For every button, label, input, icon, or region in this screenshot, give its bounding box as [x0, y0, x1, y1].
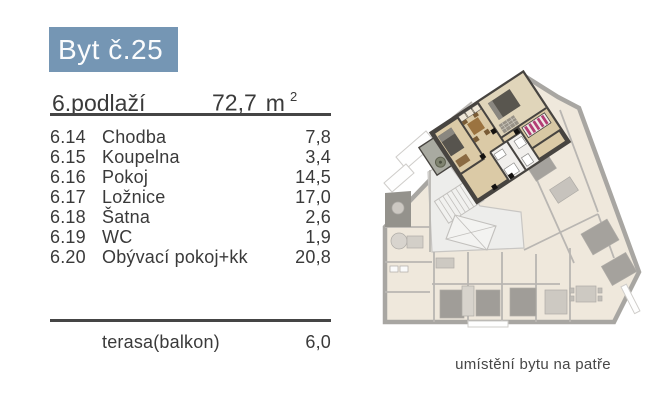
table-row: 6.16 Pokoj 14,5 [50, 167, 331, 187]
room-code: 6.19 [50, 227, 102, 247]
room-name: Obývací pokoj+kk [102, 247, 267, 267]
table-row: 6.18 Šatna 2,6 [50, 207, 331, 227]
table-row: 6.15 Koupelna 3,4 [50, 147, 331, 167]
apartment-title: Byt č.25 [49, 27, 178, 72]
bottom-divider [50, 319, 331, 322]
room-name: WC [102, 227, 267, 247]
plan-caption: umístění bytu na patře [448, 356, 618, 373]
room-area: 7,8 [267, 127, 331, 147]
room-name: Ložnice [102, 187, 267, 207]
floor-area-summary: 6.podlaží72,7m2 [52, 86, 333, 112]
room-code: 6.14 [50, 127, 102, 147]
room-code: 6.16 [50, 167, 102, 187]
room-area: 17,0 [267, 187, 331, 207]
top-divider [50, 113, 331, 116]
table-row: 6.17 Ložnice 17,0 [50, 187, 331, 207]
terrace-name: terasa(balkon) [102, 332, 267, 352]
table-row: 6.14 Chodba 7,8 [50, 127, 331, 147]
room-code: 6.17 [50, 187, 102, 207]
table-row: 6.19 WC 1,9 [50, 227, 331, 247]
room-name: Šatna [102, 207, 267, 227]
floorplan-graphic [378, 56, 652, 348]
room-code: 6.18 [50, 207, 102, 227]
room-code: 6.15 [50, 147, 102, 167]
terrace-area: 6,0 [267, 332, 331, 352]
room-code: 6.20 [50, 247, 102, 267]
room-area: 20,8 [267, 247, 331, 267]
room-name: Chodba [102, 127, 267, 147]
room-area: 2,6 [267, 207, 331, 227]
room-name: Pokoj [102, 167, 267, 187]
apartment-datasheet: Byt č.25 6.podlaží72,7m2 6.14 Chodba 7,8… [0, 0, 656, 400]
terrace-row: terasa(balkon) 6,0 [50, 332, 331, 352]
table-row: 6.20 Obývací pokoj+kk 20,8 [50, 247, 331, 267]
area-unit: m [266, 90, 285, 116]
room-area: 1,9 [267, 227, 331, 247]
room-area: 14,5 [267, 167, 331, 187]
room-area: 3,4 [267, 147, 331, 167]
area-exponent: 2 [290, 89, 297, 104]
room-name: Koupelna [102, 147, 267, 167]
total-area-value: 72,7 [212, 90, 257, 116]
floor-label: 6.podlaží [52, 91, 212, 115]
room-table: 6.14 Chodba 7,8 6.15 Koupelna 3,4 6.16 P… [50, 127, 331, 267]
